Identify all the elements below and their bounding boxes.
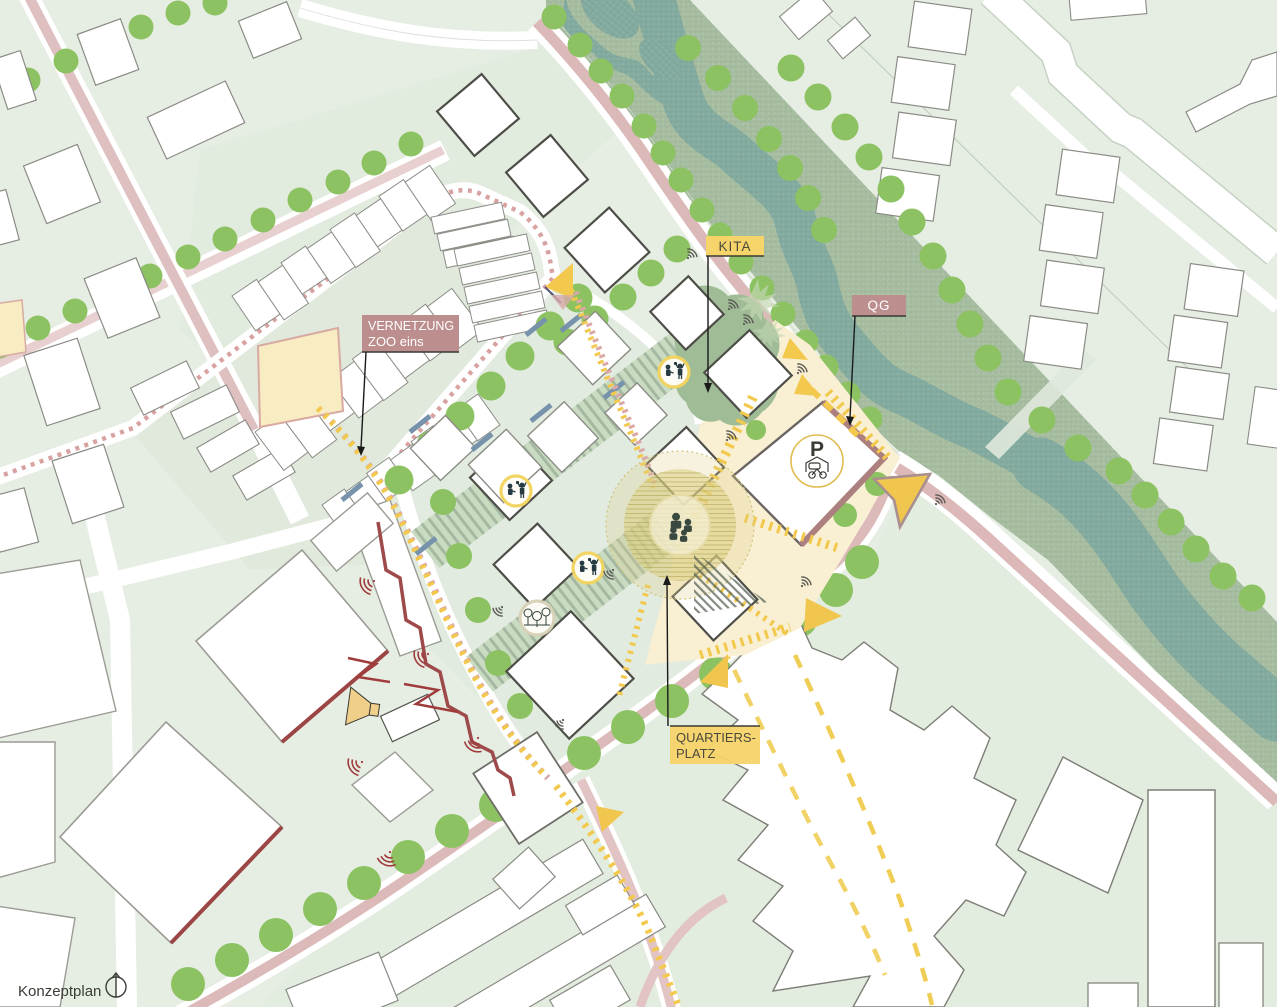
svg-text:KITA: KITA	[718, 239, 751, 254]
svg-text:PLATZ: PLATZ	[676, 746, 716, 761]
svg-text:Konzeptplan: Konzeptplan	[18, 983, 101, 1000]
svg-text:QUARTIERS-: QUARTIERS-	[676, 730, 756, 745]
svg-text:VERNETZUNG: VERNETZUNG	[368, 319, 454, 333]
svg-text:ZOO eins: ZOO eins	[368, 334, 424, 349]
svg-text:QG: QG	[867, 298, 890, 313]
